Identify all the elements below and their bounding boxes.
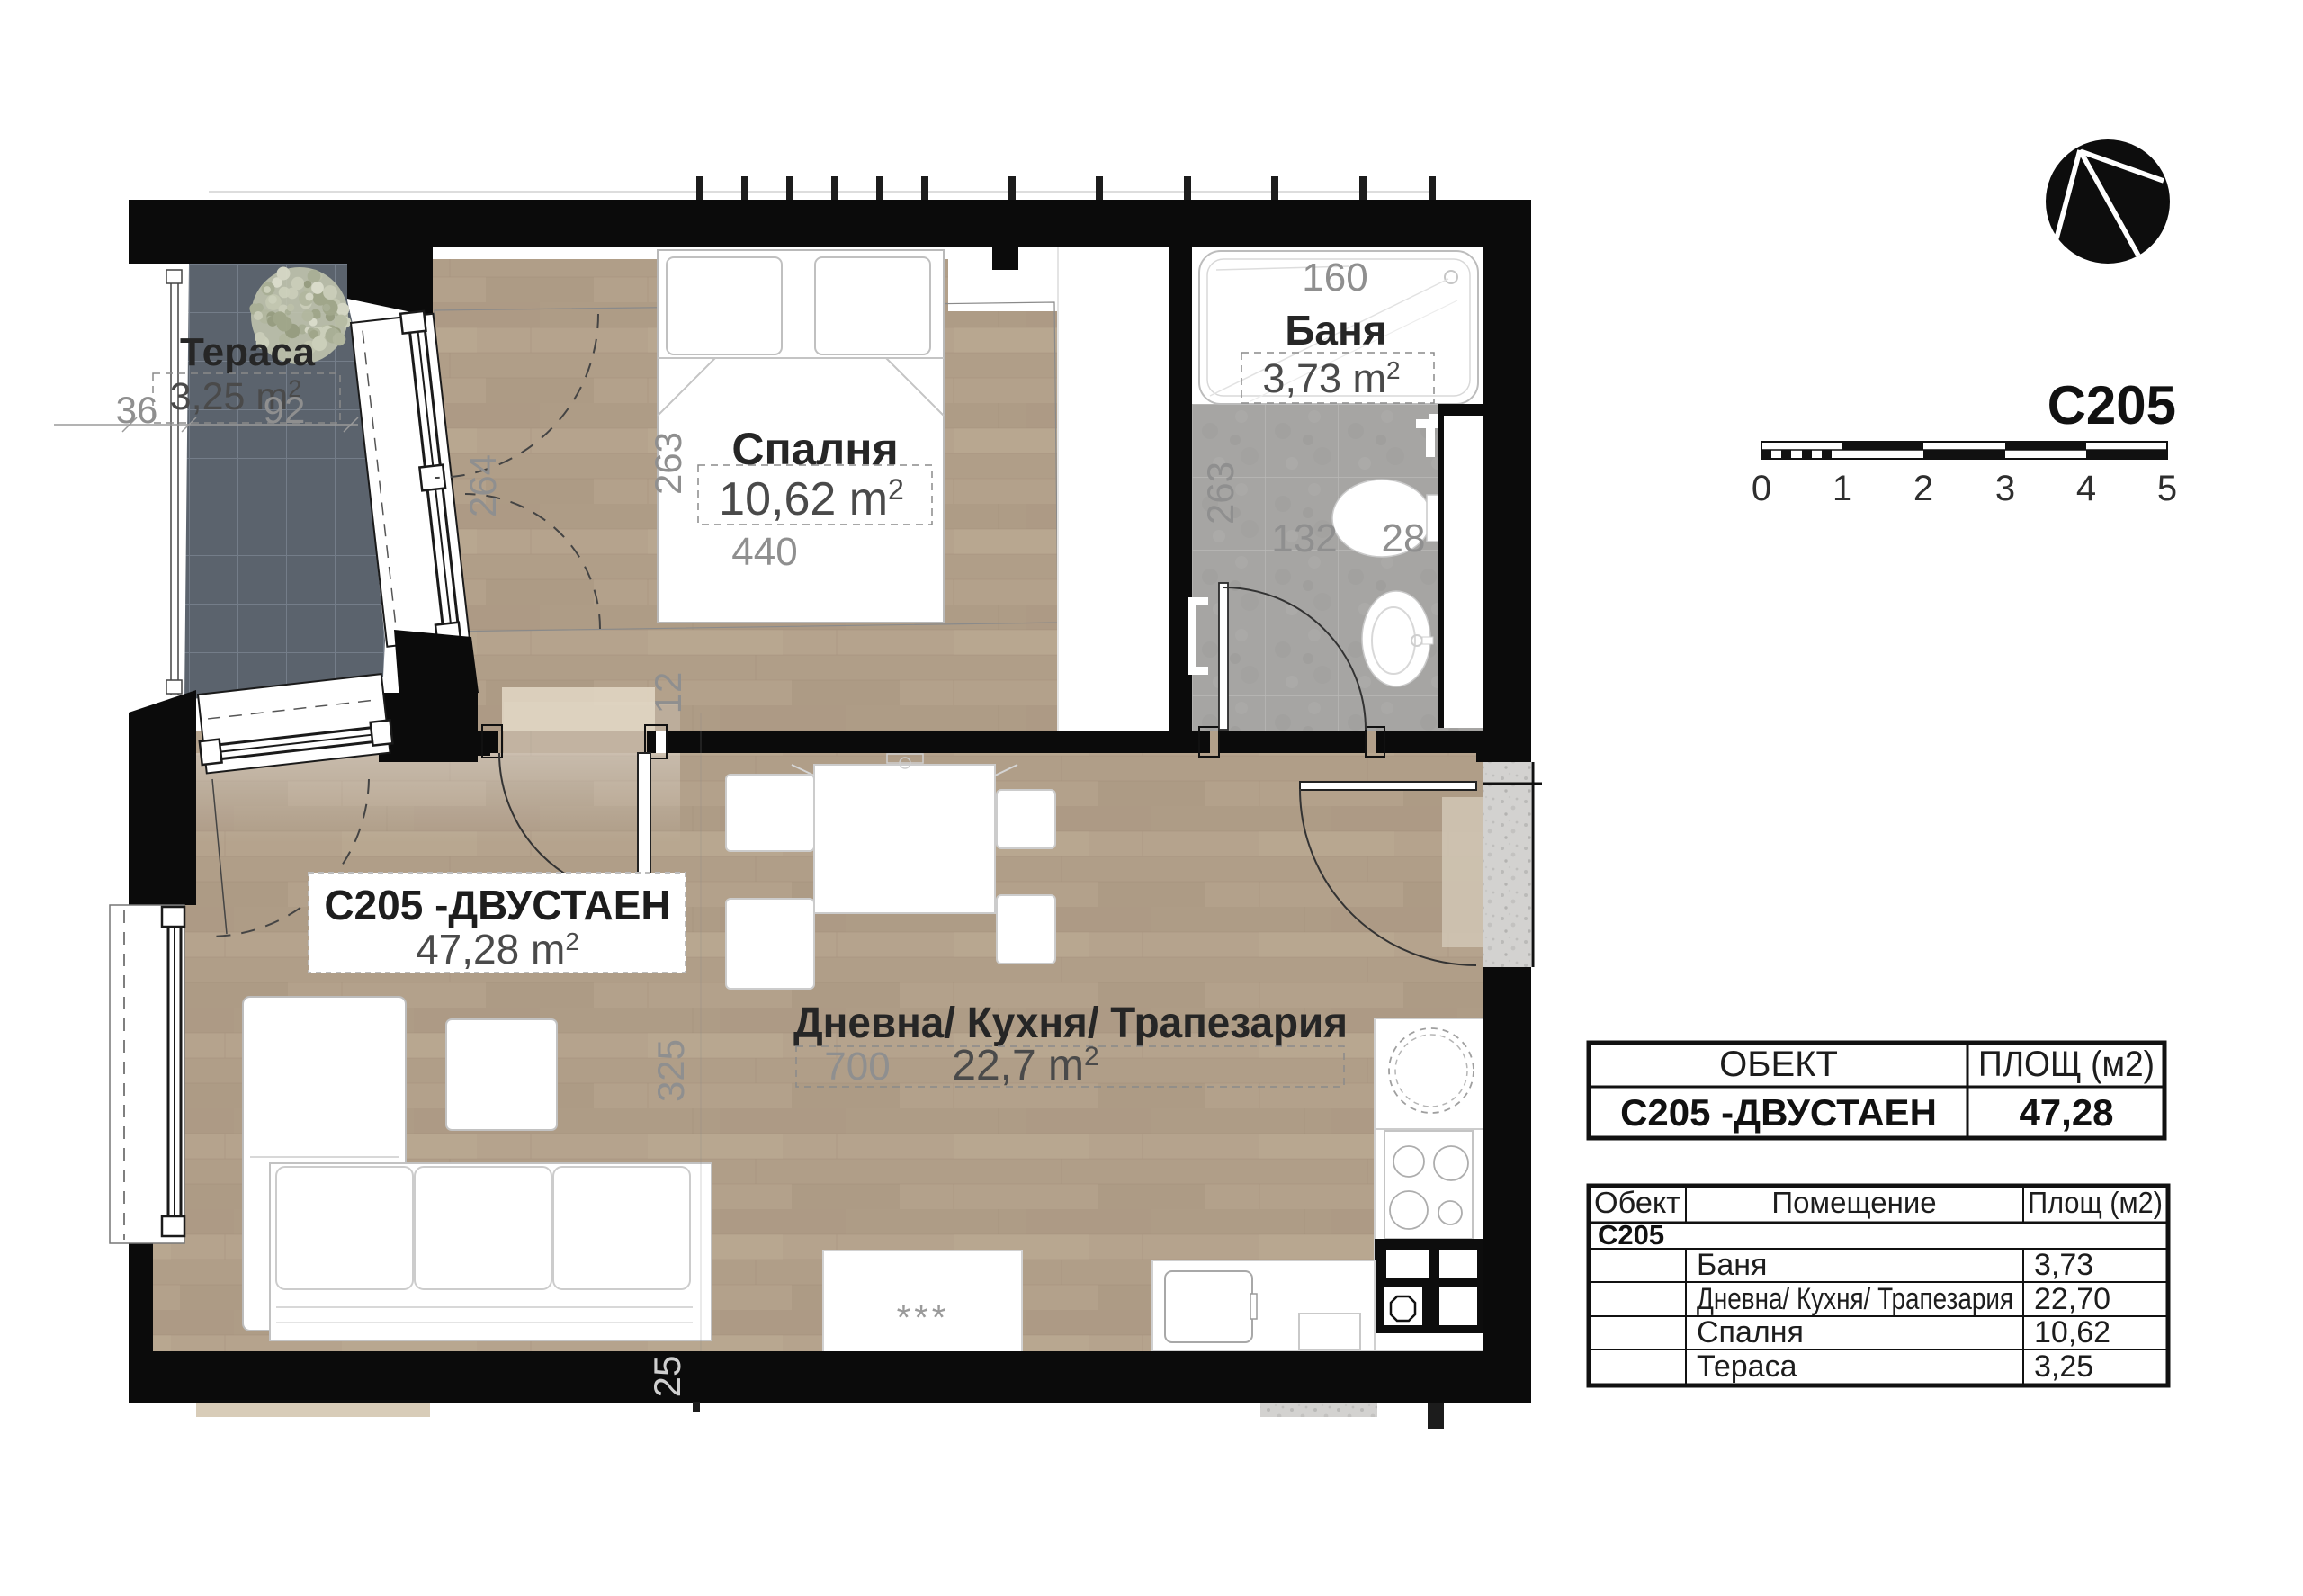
svg-text:3,73: 3,73 bbox=[2034, 1248, 2093, 1282]
svg-text:264: 264 bbox=[461, 454, 504, 517]
svg-text:263: 263 bbox=[647, 432, 689, 495]
svg-text:C205 -ДВУСТАЕН: C205 -ДВУСТАЕН bbox=[324, 882, 670, 928]
svg-text:Баня: Баня bbox=[1285, 307, 1386, 354]
svg-text:10,62: 10,62 bbox=[2034, 1315, 2110, 1349]
svg-text:1: 1 bbox=[1833, 469, 1852, 508]
svg-text:ОБЕКТ: ОБЕКТ bbox=[1719, 1045, 1838, 1084]
svg-text:132: 132 bbox=[1271, 516, 1337, 560]
svg-text:36: 36 bbox=[116, 389, 158, 431]
svg-text:92: 92 bbox=[264, 389, 306, 431]
svg-text:C205: C205 bbox=[2048, 375, 2176, 435]
svg-text:10,62 m2: 10,62 m2 bbox=[719, 473, 904, 525]
svg-text:28: 28 bbox=[1382, 516, 1426, 560]
svg-text:4: 4 bbox=[2076, 469, 2096, 508]
svg-text:Дневна/ Кухня/ Трапезария: Дневна/ Кухня/ Трапезария bbox=[1697, 1282, 2013, 1316]
svg-text:Тераса: Тераса bbox=[180, 330, 316, 374]
svg-text:Площ (м2): Площ (м2) bbox=[2028, 1186, 2163, 1219]
svg-text:Спалня: Спалня bbox=[731, 424, 898, 474]
svg-text:700: 700 bbox=[824, 1045, 890, 1089]
svg-text:Обект: Обект bbox=[1594, 1186, 1680, 1219]
svg-text:2: 2 bbox=[1913, 469, 1933, 508]
svg-text:Тераса: Тераса bbox=[1697, 1349, 1797, 1384]
svg-text:47,28 m2: 47,28 m2 bbox=[416, 926, 579, 973]
svg-text:Помещение: Помещение bbox=[1771, 1186, 1936, 1219]
svg-text:Дневна/ Кухня/ Трапезария: Дневна/ Кухня/ Трапезария bbox=[793, 1000, 1348, 1047]
svg-text:3,73 m2: 3,73 m2 bbox=[1262, 355, 1400, 401]
svg-text:47,28: 47,28 bbox=[2019, 1091, 2113, 1134]
svg-text:22,7 m2: 22,7 m2 bbox=[952, 1042, 1098, 1089]
svg-text:263: 263 bbox=[1199, 462, 1241, 525]
svg-text:C205: C205 bbox=[1598, 1219, 1664, 1251]
svg-text:0: 0 bbox=[1752, 469, 1771, 508]
svg-text:12: 12 bbox=[647, 672, 689, 714]
svg-text:***: *** bbox=[897, 1298, 950, 1338]
svg-text:440: 440 bbox=[731, 530, 797, 574]
svg-text:Спалня: Спалня bbox=[1697, 1315, 1804, 1349]
svg-text:160: 160 bbox=[1302, 256, 1367, 300]
svg-text:3,25: 3,25 bbox=[2034, 1349, 2093, 1384]
svg-text:3: 3 bbox=[1995, 469, 2015, 508]
svg-text:25: 25 bbox=[646, 1356, 688, 1398]
svg-text:22,70: 22,70 bbox=[2034, 1282, 2110, 1316]
svg-text:Баня: Баня bbox=[1697, 1248, 1767, 1282]
svg-text:ПЛОЩ (м2): ПЛОЩ (м2) bbox=[1978, 1045, 2155, 1084]
svg-text:325: 325 bbox=[650, 1039, 692, 1102]
svg-text:5: 5 bbox=[2157, 469, 2177, 508]
svg-text:C205 -ДВУСТАЕН: C205 -ДВУСТАЕН bbox=[1620, 1091, 1937, 1134]
